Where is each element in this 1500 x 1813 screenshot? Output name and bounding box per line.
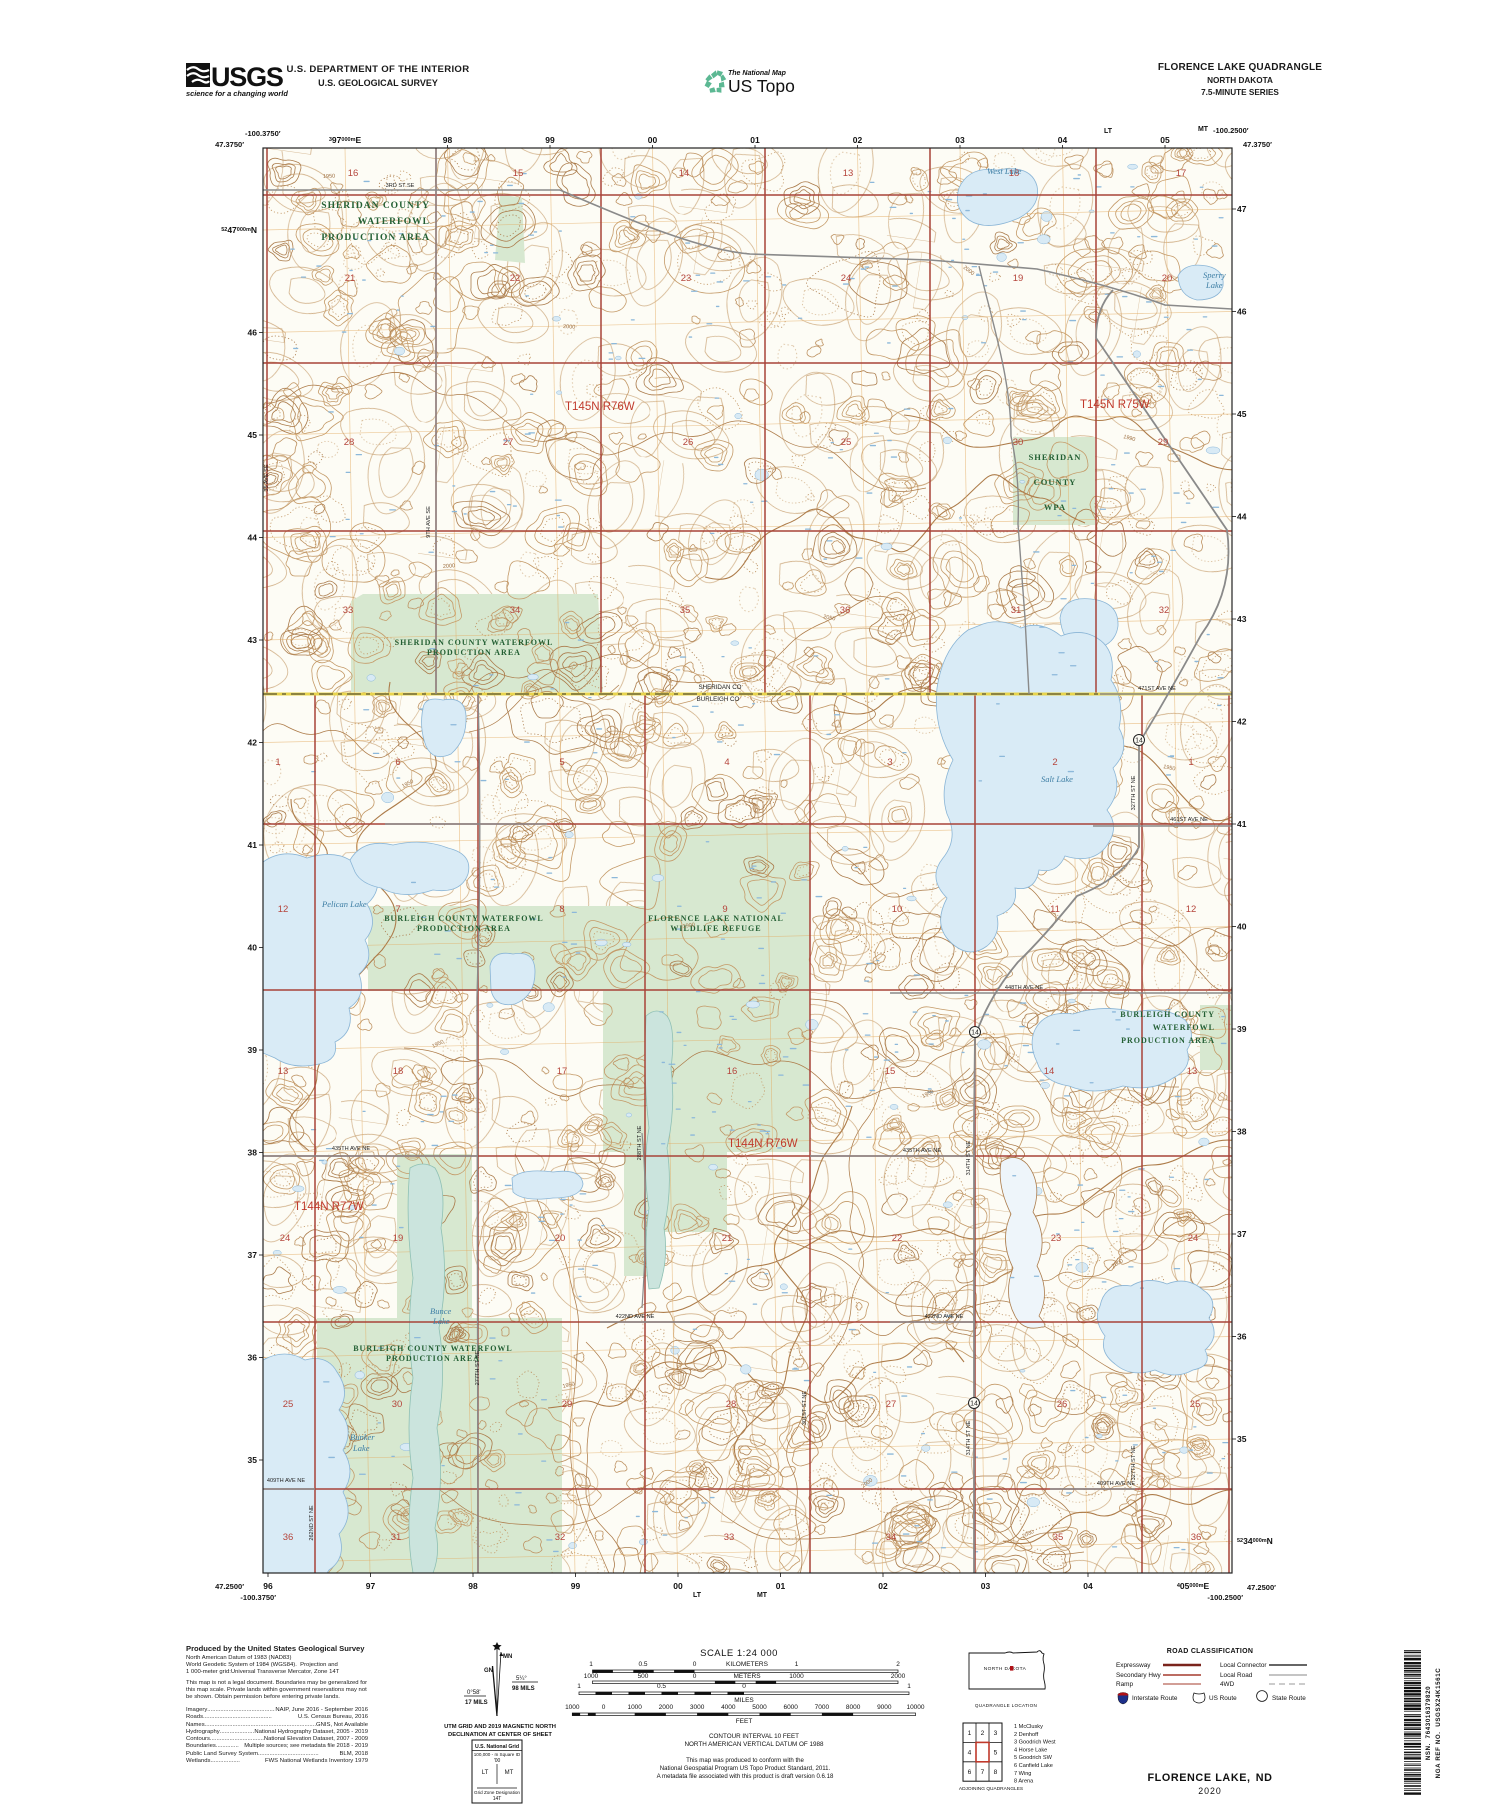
svg-text:METERS: METERS xyxy=(733,1673,761,1680)
svg-text:4 Horse Lake: 4 Horse Lake xyxy=(1014,1747,1047,1753)
svg-text:6: 6 xyxy=(968,1769,972,1776)
svg-text:96: 96 xyxy=(263,1581,273,1591)
svg-text:T144N R77W: T144N R77W xyxy=(294,1201,364,1213)
svg-text:44: 44 xyxy=(1237,512,1247,522)
svg-text:US Route: US Route xyxy=(1209,1695,1237,1702)
svg-text:2 Denhoff: 2 Denhoff xyxy=(1014,1732,1039,1738)
svg-text:1: 1 xyxy=(275,757,280,768)
svg-text:01: 01 xyxy=(776,1581,786,1591)
svg-text:Salt Lake: Salt Lake xyxy=(1041,774,1073,784)
svg-text:2020: 2020 xyxy=(1198,1786,1222,1796)
svg-text:State Route: State Route xyxy=(1272,1695,1306,1702)
svg-text:03: 03 xyxy=(981,1581,991,1591)
svg-text:33: 33 xyxy=(343,605,354,616)
svg-text:26: 26 xyxy=(683,437,694,448)
svg-text:KILOMETERS: KILOMETERS xyxy=(726,1661,769,1668)
svg-text:25: 25 xyxy=(283,1399,294,1410)
svg-text:5234000mN: 5234000mN xyxy=(1237,1536,1273,1546)
svg-text:422ND AVE NE: 422ND AVE NE xyxy=(925,1314,964,1320)
svg-text:04: 04 xyxy=(1083,1581,1093,1591)
svg-text:38: 38 xyxy=(1237,1127,1247,1137)
svg-text:5 Goodrich SW: 5 Goodrich SW xyxy=(1014,1755,1053,1761)
svg-text:LT: LT xyxy=(1104,128,1113,135)
svg-text:12: 12 xyxy=(1186,904,1197,915)
svg-text:00: 00 xyxy=(648,135,658,145)
svg-text:36: 36 xyxy=(1237,1332,1247,1342)
svg-text:28: 28 xyxy=(726,1399,737,1410)
svg-text:327TH ST NE: 327TH ST NE xyxy=(1131,1445,1137,1480)
svg-text:461ST AVE NE: 461ST AVE NE xyxy=(1170,817,1208,823)
svg-text:3RD ST SE: 3RD ST SE xyxy=(386,183,415,189)
svg-text:8: 8 xyxy=(994,1769,998,1776)
svg-text:47.2500′: 47.2500′ xyxy=(215,1582,244,1591)
svg-text:45: 45 xyxy=(1237,409,1247,419)
svg-text:02: 02 xyxy=(878,1581,888,1591)
svg-text:21: 21 xyxy=(345,273,356,284)
svg-text:26: 26 xyxy=(1057,1399,1068,1410)
svg-text:397000mE: 397000mE xyxy=(329,135,362,145)
svg-text:00: 00 xyxy=(673,1581,683,1591)
svg-text:MILES: MILES xyxy=(734,1697,754,1704)
svg-text:4: 4 xyxy=(968,1750,972,1757)
svg-text:0: 0 xyxy=(602,1704,606,1711)
svg-text:32: 32 xyxy=(1159,605,1170,616)
svg-text:4WD: 4WD xyxy=(1220,1681,1235,1688)
svg-text:277TH ST NE: 277TH ST NE xyxy=(475,1350,481,1385)
svg-text:1: 1 xyxy=(577,1683,581,1690)
svg-text:Sperry: Sperry xyxy=(1203,270,1226,280)
svg-text:45: 45 xyxy=(248,430,258,440)
svg-text:22: 22 xyxy=(892,1233,903,1244)
svg-text:409TH AVE NE: 409TH AVE NE xyxy=(1097,1481,1135,1487)
svg-text:98: 98 xyxy=(443,135,453,145)
svg-text:99: 99 xyxy=(571,1581,581,1591)
svg-text:27: 27 xyxy=(503,437,514,448)
svg-text:17 MILS: 17 MILS xyxy=(465,1700,488,1706)
svg-text:NSN. 7643016379820: NSN. 7643016379820 xyxy=(1425,1686,1432,1760)
svg-text:10: 10 xyxy=(892,904,903,915)
svg-text:30: 30 xyxy=(392,1399,403,1410)
svg-text:LT: LT xyxy=(693,1592,702,1599)
svg-text:ROAD CLASSIFICATION: ROAD CLASSIFICATION xyxy=(1167,1648,1253,1655)
svg-text:23: 23 xyxy=(681,273,692,284)
svg-text:37: 37 xyxy=(1237,1229,1247,1239)
svg-text:25: 25 xyxy=(1190,1399,1201,1410)
svg-text:7: 7 xyxy=(981,1769,985,1776)
svg-text:13: 13 xyxy=(1187,1066,1198,1077)
svg-text:5¼°: 5¼° xyxy=(516,1676,527,1682)
svg-text:100,000 - m Square ID: 100,000 - m Square ID xyxy=(474,1752,521,1757)
svg-text:47.2500′: 47.2500′ xyxy=(1247,1583,1276,1592)
svg-text:98 MILS: 98 MILS xyxy=(512,1686,535,1692)
svg-text:301ST ST NE: 301ST ST NE xyxy=(802,1391,808,1426)
svg-text:42: 42 xyxy=(1237,717,1247,727)
svg-text:BURLEIGH COUNTY: BURLEIGH COUNTY xyxy=(1120,1010,1215,1019)
svg-text:13: 13 xyxy=(843,168,854,179)
svg-text:5000: 5000 xyxy=(752,1704,767,1711)
svg-text:1: 1 xyxy=(907,1683,911,1690)
svg-text:-100.3750′: -100.3750′ xyxy=(240,1593,276,1602)
svg-text:7 Wing: 7 Wing xyxy=(1014,1771,1031,1777)
svg-text:8: 8 xyxy=(559,904,564,915)
svg-text:5: 5 xyxy=(994,1750,998,1757)
svg-text:35: 35 xyxy=(1237,1434,1247,1444)
svg-text:WATERFOWL: WATERFOWL xyxy=(1153,1023,1215,1032)
svg-text:40: 40 xyxy=(248,943,258,953)
svg-text:WATERFOWL: WATERFOWL xyxy=(358,217,430,227)
svg-text:14: 14 xyxy=(971,1030,979,1037)
svg-text:2000: 2000 xyxy=(891,1673,906,1680)
svg-text:46: 46 xyxy=(248,328,258,338)
svg-text:1 McClusky: 1 McClusky xyxy=(1014,1724,1043,1730)
svg-text:288TH ST NE: 288TH ST NE xyxy=(637,1125,643,1160)
svg-text:262ND ST NE: 262ND ST NE xyxy=(309,1505,315,1541)
svg-text:1000: 1000 xyxy=(584,1673,599,1680)
svg-text:Local Connector: Local Connector xyxy=(1220,1662,1267,1669)
svg-text:32: 32 xyxy=(555,1532,566,1543)
svg-text:Expressway: Expressway xyxy=(1116,1662,1151,1669)
svg-text:97: 97 xyxy=(366,1581,376,1591)
svg-text:01: 01 xyxy=(750,135,760,145)
svg-text:2000: 2000 xyxy=(659,1704,674,1711)
svg-text:NORTH DAKOTA: NORTH DAKOTA xyxy=(984,1666,1027,1672)
svg-text:4: 4 xyxy=(724,757,729,768)
svg-text:98: 98 xyxy=(468,1581,478,1591)
svg-text:Pelican Lake: Pelican Lake xyxy=(321,899,367,909)
svg-text:MN: MN xyxy=(503,1654,512,1660)
svg-text:35: 35 xyxy=(1053,1532,1064,1543)
svg-text:BURLEIGH CO: BURLEIGH CO xyxy=(697,696,740,703)
svg-text:SHERIDAN COUNTY: SHERIDAN COUNTY xyxy=(321,201,430,211)
svg-text:SHERIDAN: SHERIDAN xyxy=(1029,452,1082,462)
svg-text:MT: MT xyxy=(757,1592,768,1599)
svg-text:22: 22 xyxy=(510,273,521,284)
svg-text:19: 19 xyxy=(1013,273,1024,284)
svg-text:20: 20 xyxy=(1162,273,1173,284)
svg-text:448TH AVE NE: 448TH AVE NE xyxy=(1005,985,1043,991)
svg-text:FLORENCE LAKE NATIONAL: FLORENCE LAKE NATIONAL xyxy=(648,914,784,923)
svg-text:47.3750′: 47.3750′ xyxy=(1243,140,1272,149)
svg-text:327TH ST NE: 327TH ST NE xyxy=(1131,775,1137,810)
svg-text:Interstate Route: Interstate Route xyxy=(1132,1695,1178,1702)
svg-text:'00: '00 xyxy=(494,1758,501,1764)
svg-text:29: 29 xyxy=(562,1399,573,1410)
svg-text:16: 16 xyxy=(348,168,359,179)
svg-text:9000: 9000 xyxy=(877,1704,892,1711)
svg-text:Grid Zone Designation: Grid Zone Designation xyxy=(474,1790,520,1795)
svg-text:04: 04 xyxy=(1058,135,1068,145)
svg-text:15: 15 xyxy=(513,168,524,179)
svg-text:0°58': 0°58' xyxy=(467,1690,481,1696)
svg-text:500: 500 xyxy=(638,1673,649,1680)
svg-text:36: 36 xyxy=(1191,1532,1202,1543)
svg-text:FEET: FEET xyxy=(736,1718,753,1725)
svg-text:QUADRANGLE LOCATION: QUADRANGLE LOCATION xyxy=(975,1703,1037,1708)
svg-text:A metadata file associated wit: A metadata file associated with this pro… xyxy=(657,1773,834,1780)
svg-text:SCALE 1:24 000: SCALE 1:24 000 xyxy=(700,1648,778,1659)
svg-text:T144N R76W: T144N R76W xyxy=(728,1138,798,1150)
svg-text:471ST AVE NE: 471ST AVE NE xyxy=(1138,686,1176,692)
svg-text:36: 36 xyxy=(248,1353,258,1363)
svg-text:1950: 1950 xyxy=(323,174,335,180)
svg-text:43: 43 xyxy=(248,635,258,645)
svg-text:BURLEIGH COUNTY WATERFOWL: BURLEIGH COUNTY WATERFOWL xyxy=(384,914,544,923)
svg-text:MT: MT xyxy=(1198,126,1209,133)
svg-text:422ND AVE NE: 422ND AVE NE xyxy=(616,1314,655,1320)
svg-text:42: 42 xyxy=(248,738,258,748)
svg-text:MT: MT xyxy=(505,1770,514,1776)
svg-text:1: 1 xyxy=(1188,757,1193,768)
svg-text:1: 1 xyxy=(589,1661,593,1668)
svg-text:SHERIDAN CO: SHERIDAN CO xyxy=(699,684,742,691)
svg-text:40: 40 xyxy=(1237,922,1247,932)
svg-text:2: 2 xyxy=(896,1661,900,1668)
svg-text:19: 19 xyxy=(393,1233,404,1244)
svg-text:-100.3750′: -100.3750′ xyxy=(245,129,281,138)
svg-text:16: 16 xyxy=(727,1066,738,1077)
svg-text:39: 39 xyxy=(248,1045,258,1055)
svg-text:FLORENCE LAKE, ND: FLORENCE LAKE, ND xyxy=(1147,1772,1272,1784)
svg-text:CONTOUR INTERVAL 10 FEET: CONTOUR INTERVAL 10 FEET xyxy=(709,1733,799,1740)
svg-text:30: 30 xyxy=(1013,437,1024,448)
svg-text:14: 14 xyxy=(679,168,690,179)
svg-text:This map was produced to confo: This map was produced to conform with th… xyxy=(686,1757,804,1764)
svg-text:Bunker: Bunker xyxy=(350,1432,375,1442)
svg-text:28: 28 xyxy=(344,437,355,448)
svg-text:6 Canfield Lake: 6 Canfield Lake xyxy=(1014,1763,1053,1769)
svg-text:24: 24 xyxy=(280,1233,291,1244)
svg-text:1000: 1000 xyxy=(627,1704,642,1711)
svg-text:14: 14 xyxy=(1044,1066,1055,1077)
svg-text:39: 39 xyxy=(1237,1024,1247,1034)
svg-text:Secondary Hwy: Secondary Hwy xyxy=(1116,1672,1162,1679)
svg-text:34: 34 xyxy=(510,605,521,616)
svg-text:13: 13 xyxy=(278,1066,289,1077)
svg-text:Local Road: Local Road xyxy=(1220,1672,1253,1679)
svg-text:435TH AVE NE: 435TH AVE NE xyxy=(903,1148,941,1154)
svg-text:03: 03 xyxy=(955,135,965,145)
svg-text:GN: GN xyxy=(484,1668,493,1674)
svg-text:05: 05 xyxy=(1160,135,1170,145)
svg-text:0.5: 0.5 xyxy=(657,1683,666,1690)
svg-text:27: 27 xyxy=(886,1399,897,1410)
svg-text:435TH AVE NE: 435TH AVE NE xyxy=(332,1146,370,1152)
svg-text:8000: 8000 xyxy=(846,1704,861,1711)
svg-text:35 AVE SE: 35 AVE SE xyxy=(264,464,270,492)
svg-text:PRODUCTION AREA: PRODUCTION AREA xyxy=(1121,1036,1215,1045)
svg-text:35: 35 xyxy=(248,1455,258,1465)
svg-text:5247000mN: 5247000mN xyxy=(221,225,257,235)
svg-text:44: 44 xyxy=(248,533,258,543)
svg-text:-100.2500′: -100.2500′ xyxy=(1207,1593,1243,1602)
svg-text:LT: LT xyxy=(482,1770,489,1776)
svg-text:15: 15 xyxy=(885,1066,896,1077)
svg-text:7000: 7000 xyxy=(815,1704,830,1711)
svg-text:14: 14 xyxy=(1135,738,1143,745)
svg-text:02: 02 xyxy=(853,135,863,145)
svg-text:1000: 1000 xyxy=(565,1704,580,1711)
svg-text:Ramp: Ramp xyxy=(1116,1681,1133,1688)
svg-text:3: 3 xyxy=(887,757,892,768)
svg-text:31: 31 xyxy=(1011,605,1022,616)
svg-text:-100.2500′: -100.2500′ xyxy=(1213,126,1249,135)
svg-text:3 Goodrich West: 3 Goodrich West xyxy=(1014,1740,1056,1746)
svg-text:33: 33 xyxy=(724,1532,735,1543)
svg-text:PRODUCTION AREA: PRODUCTION AREA xyxy=(386,1354,480,1363)
svg-text:2: 2 xyxy=(981,1730,985,1737)
svg-text:14: 14 xyxy=(970,1401,978,1408)
svg-text:9TH AVE SE: 9TH AVE SE xyxy=(426,506,432,538)
svg-text:14T: 14T xyxy=(493,1796,502,1802)
svg-text:409TH AVE NE: 409TH AVE NE xyxy=(267,1478,305,1484)
svg-text:17: 17 xyxy=(1176,168,1187,179)
svg-text:99: 99 xyxy=(545,135,555,145)
svg-text:Bunce: Bunce xyxy=(430,1306,451,1316)
svg-text:36: 36 xyxy=(840,605,851,616)
svg-text:NORTH AMERICAN VERTICAL DATUM: NORTH AMERICAN VERTICAL DATUM OF 1988 xyxy=(684,1741,824,1748)
svg-text:T145N R76W: T145N R76W xyxy=(565,401,635,413)
svg-text:314TH ST NE: 314TH ST NE xyxy=(966,1140,972,1175)
svg-text:PRODUCTION AREA: PRODUCTION AREA xyxy=(427,648,521,657)
svg-text:10000: 10000 xyxy=(906,1704,924,1711)
svg-text:1: 1 xyxy=(795,1661,799,1668)
svg-text:U.S. National Grid: U.S. National Grid xyxy=(475,1744,519,1750)
svg-text:Lake: Lake xyxy=(352,1443,370,1453)
svg-text:BURLEIGH COUNTY WATERFOWL: BURLEIGH COUNTY WATERFOWL xyxy=(353,1344,513,1353)
svg-text:34: 34 xyxy=(886,1532,897,1543)
svg-text:1000: 1000 xyxy=(789,1673,804,1680)
svg-text:PRODUCTION AREA: PRODUCTION AREA xyxy=(417,924,511,933)
svg-text:0: 0 xyxy=(742,1683,746,1690)
svg-text:47.3750′: 47.3750′ xyxy=(215,140,244,149)
svg-text:T145N R75W: T145N R75W xyxy=(1080,399,1150,411)
svg-text:6: 6 xyxy=(395,757,400,768)
svg-text:6000: 6000 xyxy=(783,1704,798,1711)
svg-text:ADJOINING QUADRANGLES: ADJOINING QUADRANGLES xyxy=(959,1786,1023,1792)
svg-text:3000: 3000 xyxy=(690,1704,705,1711)
svg-text:4000: 4000 xyxy=(721,1704,736,1711)
svg-text:UTM GRID AND 2019 MAGNETIC NOR: UTM GRID AND 2019 MAGNETIC NORTH xyxy=(444,1724,556,1730)
svg-text:DECLINATION AT CENTER OF SHEET: DECLINATION AT CENTER OF SHEET xyxy=(448,1732,552,1738)
svg-text:West Lake: West Lake xyxy=(987,166,1022,176)
svg-text:0.5: 0.5 xyxy=(638,1661,647,1668)
svg-text:37: 37 xyxy=(248,1250,258,1260)
svg-text:5: 5 xyxy=(559,757,564,768)
svg-text:21: 21 xyxy=(722,1233,733,1244)
svg-text:24: 24 xyxy=(1188,1233,1199,1244)
svg-text:405000mE: 405000mE xyxy=(1177,1581,1210,1591)
svg-text:43: 43 xyxy=(1237,614,1247,624)
svg-text:25: 25 xyxy=(841,437,852,448)
svg-text:17: 17 xyxy=(557,1066,568,1077)
svg-text:11: 11 xyxy=(1050,904,1060,915)
svg-text:1: 1 xyxy=(968,1730,972,1737)
svg-text:0: 0 xyxy=(693,1661,697,1668)
svg-text:314TH ST NE: 314TH ST NE xyxy=(966,1420,972,1455)
svg-text:2: 2 xyxy=(1052,757,1057,768)
svg-text:3: 3 xyxy=(994,1730,998,1737)
svg-text:COUNTY: COUNTY xyxy=(1034,477,1077,487)
svg-text:36: 36 xyxy=(283,1532,294,1543)
svg-text:Lake: Lake xyxy=(1205,280,1223,290)
svg-text:31: 31 xyxy=(391,1532,402,1543)
svg-text:23: 23 xyxy=(1051,1233,1062,1244)
svg-text:41: 41 xyxy=(1237,819,1247,829)
svg-text:18: 18 xyxy=(393,1066,404,1077)
svg-text:8 Arena: 8 Arena xyxy=(1014,1779,1034,1785)
svg-text:National Geospatial Program US: National Geospatial Program US Topo Prod… xyxy=(660,1765,831,1772)
svg-text:0: 0 xyxy=(693,1673,697,1680)
svg-text:12: 12 xyxy=(278,904,289,915)
svg-text:41: 41 xyxy=(248,840,258,850)
svg-text:SHERIDAN COUNTY WATERFOWL: SHERIDAN COUNTY WATERFOWL xyxy=(395,638,554,647)
svg-text:47: 47 xyxy=(1237,204,1247,214)
svg-text:Lake: Lake xyxy=(432,1316,450,1326)
svg-text:24: 24 xyxy=(841,273,852,284)
svg-text:35: 35 xyxy=(680,605,691,616)
svg-text:29: 29 xyxy=(1158,437,1169,448)
svg-text:38: 38 xyxy=(248,1148,258,1158)
svg-text:WPA: WPA xyxy=(1044,502,1066,512)
svg-text:2000: 2000 xyxy=(443,563,456,570)
svg-text:20: 20 xyxy=(555,1233,566,1244)
svg-text:2000: 2000 xyxy=(563,324,576,331)
svg-text:46: 46 xyxy=(1237,307,1247,317)
svg-text:PRODUCTION AREA: PRODUCTION AREA xyxy=(321,233,430,243)
svg-text:NGA REF NO. USGSX24K1561C: NGA REF NO. USGSX24K1561C xyxy=(1435,1668,1442,1779)
